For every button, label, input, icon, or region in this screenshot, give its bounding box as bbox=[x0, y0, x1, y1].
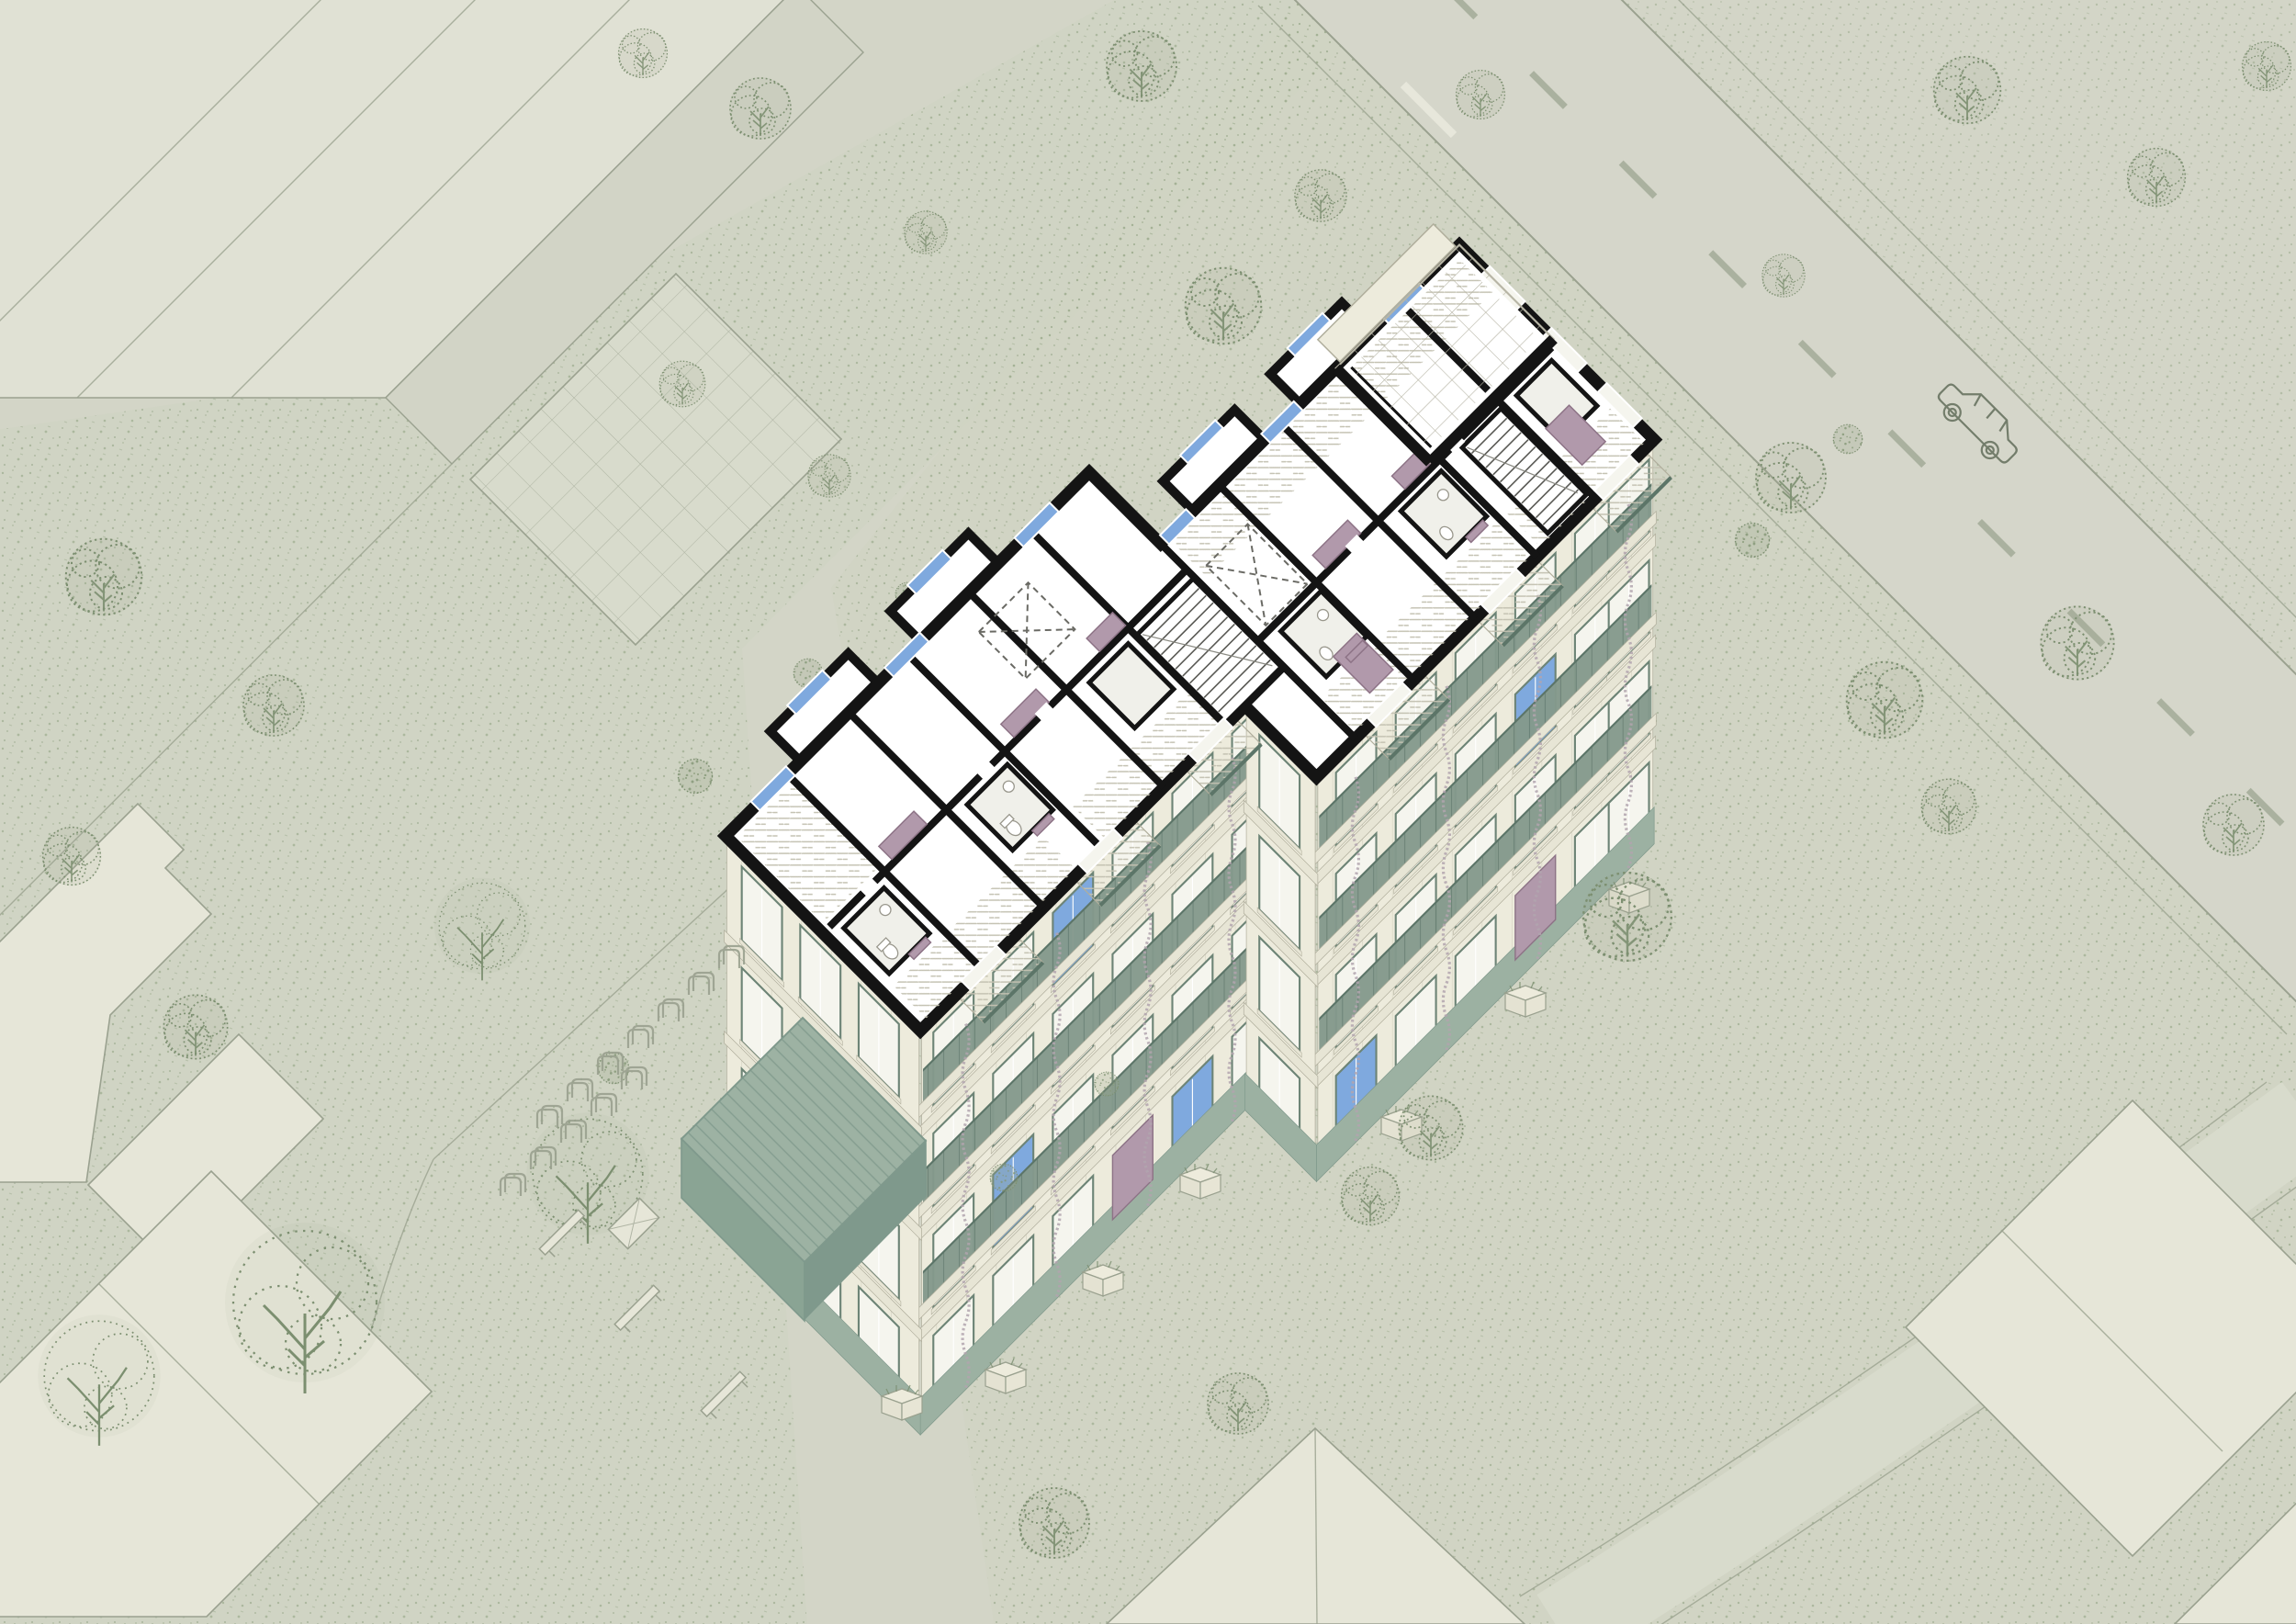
tree bbox=[1341, 1167, 1401, 1226]
tree bbox=[2202, 794, 2265, 856]
tree bbox=[1920, 778, 1976, 834]
tree bbox=[242, 674, 305, 737]
tree bbox=[1933, 56, 2002, 125]
tree bbox=[1846, 661, 1924, 739]
tree bbox=[2242, 41, 2291, 91]
tree bbox=[163, 994, 228, 1059]
tree bbox=[1398, 1095, 1463, 1160]
tree bbox=[1106, 30, 1177, 102]
tree bbox=[1761, 254, 1806, 298]
tree bbox=[807, 454, 851, 498]
tree bbox=[1294, 169, 1347, 222]
facade-strip-STEP bbox=[1244, 705, 1318, 1183]
tree bbox=[42, 827, 102, 886]
shrub bbox=[678, 759, 713, 794]
tree bbox=[1019, 1487, 1090, 1559]
shrub bbox=[1095, 1072, 1120, 1097]
tree bbox=[2127, 148, 2187, 208]
tree bbox=[1755, 442, 1827, 513]
shrub bbox=[1833, 424, 1863, 454]
shrub bbox=[1735, 523, 1770, 558]
tree bbox=[65, 538, 143, 616]
tree bbox=[1582, 872, 1673, 963]
shrub bbox=[990, 1164, 1018, 1191]
tree bbox=[1185, 267, 1263, 345]
tree bbox=[729, 77, 792, 140]
site-plan-canvas bbox=[0, 0, 2296, 1624]
tree bbox=[659, 361, 706, 408]
tree bbox=[618, 28, 668, 78]
tree bbox=[1207, 1372, 1269, 1435]
architectural-axonometric-site-plan bbox=[0, 0, 2296, 1624]
tree bbox=[1456, 70, 1505, 119]
tree bbox=[904, 210, 948, 254]
tree bbox=[2040, 605, 2115, 681]
